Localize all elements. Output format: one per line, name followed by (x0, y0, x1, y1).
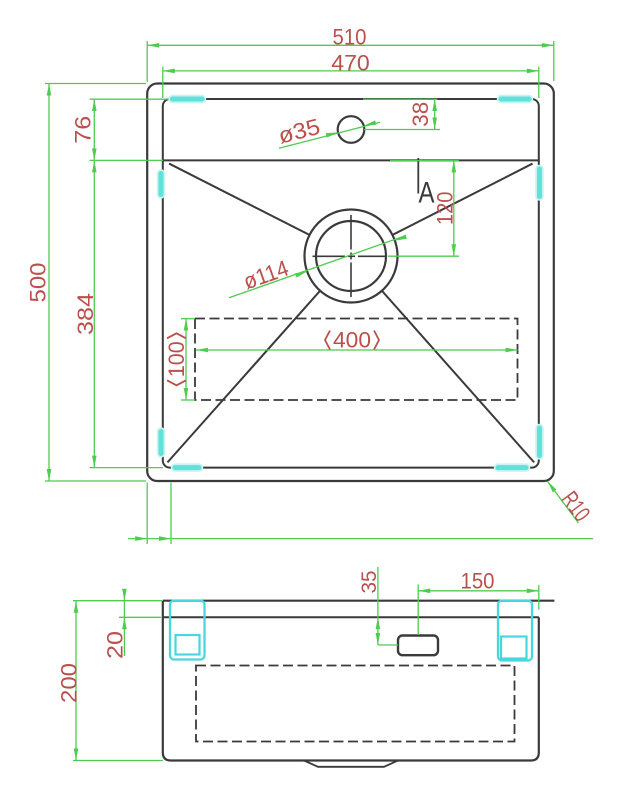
svg-text:38: 38 (408, 102, 433, 127)
svg-text:150: 150 (461, 568, 495, 593)
svg-text:400: 400 (333, 328, 371, 353)
svg-text:200: 200 (57, 663, 82, 703)
svg-text:120: 120 (432, 192, 457, 226)
svg-text:384: 384 (73, 293, 98, 335)
svg-text:100: 100 (164, 341, 189, 377)
svg-text:470: 470 (331, 50, 370, 75)
svg-text:510: 510 (333, 24, 367, 49)
svg-text:35: 35 (357, 570, 381, 593)
svg-text:76: 76 (71, 116, 96, 144)
svg-text:20: 20 (103, 631, 128, 659)
svg-text:500: 500 (26, 263, 51, 303)
